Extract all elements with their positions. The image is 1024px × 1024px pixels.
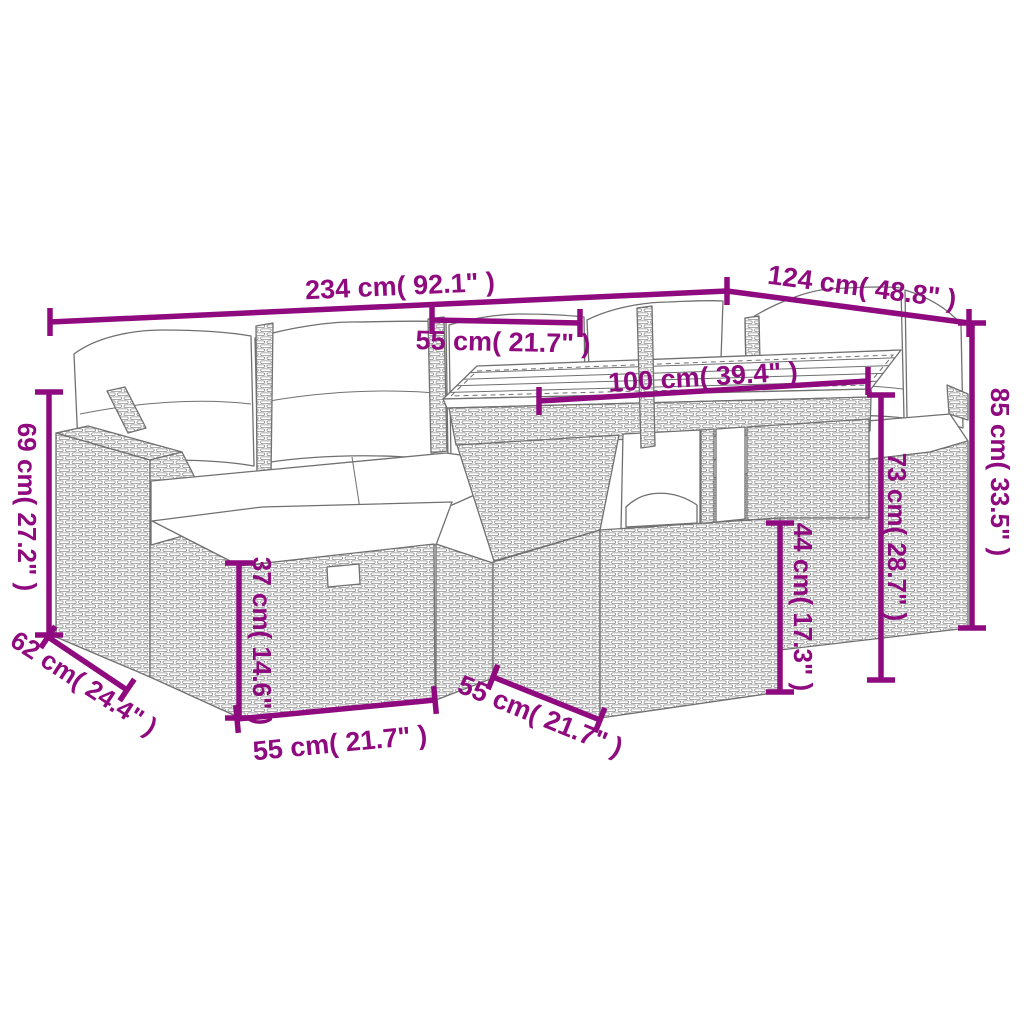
armrest-side (56, 433, 150, 677)
dimension-label: 37 cm( 14.6" ) (247, 557, 277, 725)
table-right-panel (747, 419, 869, 520)
dimension-label: 55 cm( 21.7" ) (251, 720, 428, 767)
dimension-label: 44 cm( 17.3" ) (788, 523, 818, 691)
dimension-diagram: 234 cm( 92.1" ) 124 cm( 48.8" ) 55 cm( 2… (0, 0, 1024, 1024)
dimension-label: 73 cm( 28.7" ) (882, 453, 912, 621)
ottoman-label-patch (327, 564, 360, 587)
dimension-label: 85 cm( 33.5" ) (985, 388, 1015, 556)
furniture-line-art: 234 cm( 92.1" ) 124 cm( 48.8" ) 55 cm( 2… (0, 0, 1024, 1024)
table-shelf-divider (701, 429, 714, 525)
table-base-front (600, 518, 780, 718)
dimension-seat-width: 55 cm( 21.7" ) (415, 306, 590, 359)
table-shelf-opening (716, 427, 745, 522)
frame-post (256, 323, 273, 479)
cushion-through-shelf (626, 493, 697, 527)
dimension-label: 234 cm( 92.1" ) (304, 267, 495, 306)
dimension-label: 69 cm( 27.2" ) (12, 423, 42, 591)
dimension-label: 55 cm( 21.7" ) (415, 325, 590, 359)
